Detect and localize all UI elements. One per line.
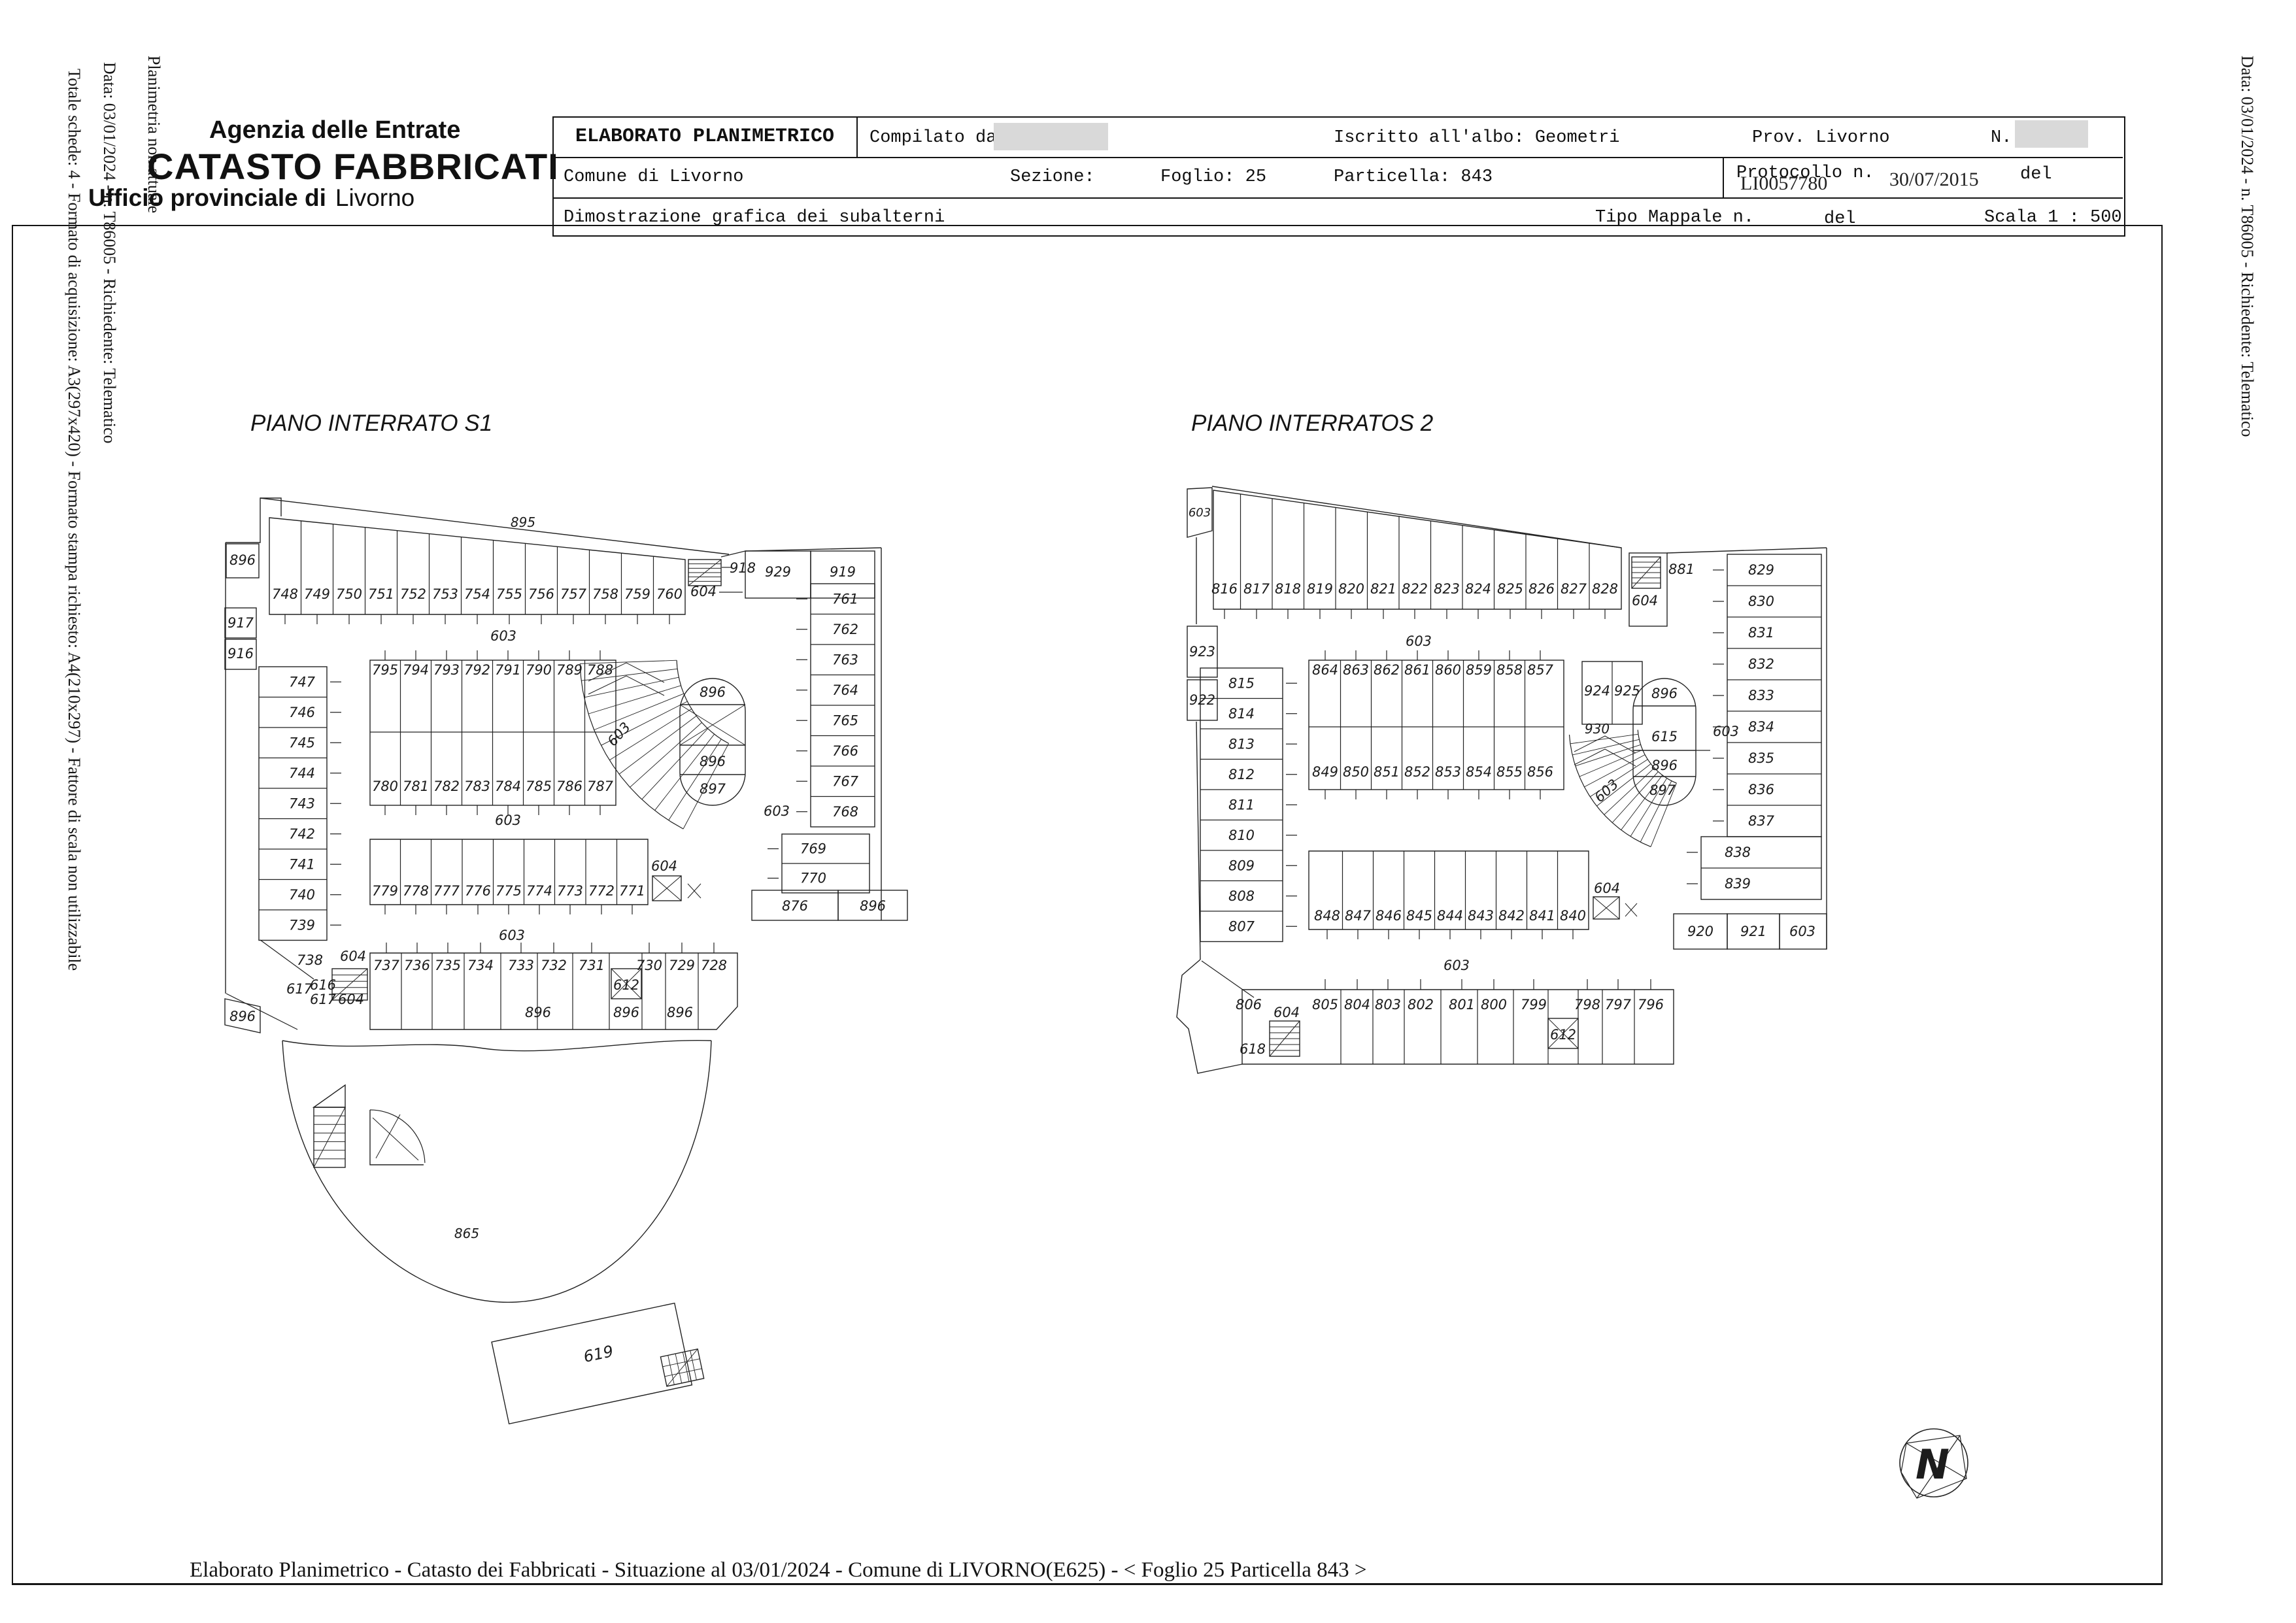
- room-label: 734: [467, 958, 494, 973]
- room-label: 798: [1574, 997, 1600, 1012]
- room-label: 787: [587, 778, 614, 794]
- room-label: 839: [1725, 876, 1751, 892]
- building-619: 619: [492, 1300, 705, 1424]
- room-label: 790: [526, 662, 552, 678]
- room-label: 896: [613, 1005, 639, 1020]
- room-label: 604: [1632, 593, 1658, 609]
- room-label: 612: [613, 977, 639, 993]
- room-label: 817: [1243, 581, 1270, 597]
- room-label: 799: [1521, 997, 1547, 1012]
- room-label: 861: [1404, 662, 1430, 678]
- room-label: 783: [464, 778, 490, 794]
- room-label: 779: [372, 883, 398, 899]
- room-label: 810: [1228, 828, 1255, 843]
- room-label: 741: [289, 856, 315, 872]
- room-label: 858: [1496, 662, 1523, 678]
- room-label: 604: [338, 992, 364, 1007]
- room-label: 784: [495, 778, 521, 794]
- room-label: 863: [1343, 662, 1369, 678]
- room-label: 748: [272, 586, 298, 602]
- room-label: 618: [1240, 1041, 1266, 1057]
- room-label: 781: [403, 778, 429, 794]
- room-label: 865: [454, 1226, 479, 1241]
- room-label: 853: [1435, 764, 1461, 780]
- room-label: 820: [1338, 581, 1364, 597]
- room-label: 828: [1592, 581, 1618, 597]
- room-label: 764: [832, 682, 858, 698]
- room-label: 860: [1435, 662, 1461, 678]
- room-label: 756: [528, 586, 554, 602]
- room-label: 811: [1228, 797, 1255, 812]
- room-label: 929: [765, 564, 791, 580]
- room-label: 603: [1443, 958, 1470, 973]
- room-label: 797: [1605, 997, 1632, 1012]
- room-label: 821: [1370, 581, 1396, 597]
- room-label: 896: [667, 1005, 693, 1020]
- room-label: 916: [228, 646, 254, 661]
- room-label: 917: [228, 615, 254, 631]
- room-label: 759: [624, 586, 650, 602]
- north-compass-icon: N: [1900, 1429, 1968, 1498]
- room-label: 812: [1228, 767, 1255, 782]
- room-label: 730: [636, 958, 662, 973]
- room-label: 728: [701, 958, 727, 973]
- room-label: 603: [490, 628, 516, 644]
- room-label: 746: [289, 705, 315, 720]
- room-label: 930: [1585, 721, 1610, 737]
- room-label: 792: [464, 662, 490, 678]
- room-label: 603: [1789, 924, 1815, 939]
- compass-north-letter: N: [1916, 1441, 1950, 1488]
- room-label: 757: [560, 586, 587, 602]
- room-label: 773: [557, 883, 583, 899]
- room-label: 837: [1748, 813, 1775, 829]
- room-label: 754: [464, 586, 490, 602]
- room-label: 777: [433, 883, 460, 899]
- room-label: 762: [832, 622, 858, 637]
- room-label: 775: [496, 883, 522, 899]
- room-label: 737: [373, 958, 400, 973]
- room-label: 864: [1312, 662, 1338, 678]
- room-label: 603: [1406, 633, 1432, 649]
- room-label: 795: [372, 662, 398, 678]
- room-label: 782: [433, 778, 460, 794]
- room-label: 729: [669, 958, 695, 973]
- room-label: 833: [1748, 688, 1774, 703]
- room-label: 896: [229, 1009, 256, 1024]
- room-label: 738: [297, 952, 323, 968]
- room-label: 619: [582, 1342, 615, 1366]
- room-label: 796: [1638, 997, 1664, 1012]
- room-label: 809: [1228, 858, 1255, 873]
- room-label: 758: [592, 586, 618, 602]
- room-label: 815: [1228, 675, 1255, 691]
- room-label: 813: [1228, 736, 1255, 752]
- room-label: 767: [832, 773, 859, 789]
- room-label: 826: [1528, 581, 1555, 597]
- room-label: 753: [432, 586, 458, 602]
- room-label: 603: [1713, 724, 1739, 739]
- room-label: 769: [800, 841, 826, 857]
- room-label: 772: [588, 883, 615, 899]
- room-label: 804: [1344, 997, 1370, 1012]
- room-label: 822: [1402, 581, 1428, 597]
- plan-s1-drawing: 8957487497507517527537547557567577587597…: [225, 498, 907, 1424]
- room-label: 749: [304, 586, 330, 602]
- room-label: 876: [782, 898, 808, 914]
- room-label: 896: [700, 684, 726, 700]
- room-label: 733: [508, 958, 534, 973]
- room-label: 807: [1228, 918, 1255, 934]
- room-label: 848: [1314, 908, 1340, 924]
- room-label: 740: [289, 887, 315, 903]
- room-label: 616: [310, 977, 336, 993]
- room-label: 736: [404, 958, 430, 973]
- room-label: 744: [289, 765, 315, 781]
- room-label: 818: [1275, 581, 1301, 597]
- room-label: 805: [1312, 997, 1338, 1012]
- room-label: 859: [1466, 662, 1492, 678]
- room-label: 612: [1550, 1027, 1576, 1043]
- room-label: 819: [1307, 581, 1333, 597]
- room-label: 770: [800, 871, 826, 886]
- room-label: 752: [400, 586, 426, 602]
- room-label: 856: [1527, 764, 1553, 780]
- room-label: 751: [368, 586, 394, 602]
- room-label: 750: [336, 586, 362, 602]
- room-label: 881: [1668, 561, 1695, 577]
- floor-plans-drawing: 8957487497507517527537547557567577587597…: [0, 0, 2296, 1623]
- room-label: 755: [496, 586, 522, 602]
- room-label: 920: [1687, 924, 1714, 939]
- room-label: 761: [832, 591, 858, 607]
- room-label: 895: [511, 514, 535, 530]
- room-label: 852: [1404, 764, 1430, 780]
- room-label: 771: [619, 883, 645, 899]
- room-label: 742: [289, 826, 315, 842]
- room-label: 827: [1561, 581, 1587, 597]
- room-label: 831: [1748, 625, 1774, 641]
- room-label: 896: [1651, 686, 1678, 701]
- room-label: 923: [1189, 644, 1215, 660]
- room-label: 850: [1343, 764, 1369, 780]
- room-label: 838: [1725, 845, 1751, 860]
- room-label: 835: [1748, 750, 1774, 766]
- room-label: 604: [651, 858, 677, 874]
- room-label: 918: [730, 560, 756, 576]
- room-label: 793: [433, 662, 460, 678]
- room-label: 840: [1560, 908, 1586, 924]
- room-label: 768: [832, 804, 858, 820]
- room-label: 747: [289, 674, 316, 690]
- room-label: 735: [435, 958, 461, 973]
- room-label: 785: [526, 778, 552, 794]
- room-label: 896: [860, 898, 886, 914]
- room-label: 847: [1345, 908, 1372, 924]
- room-label: 603: [764, 803, 790, 819]
- room-label: 789: [556, 662, 582, 678]
- room-label: 780: [372, 778, 398, 794]
- room-label: 919: [830, 564, 856, 580]
- room-label: 896: [1651, 758, 1678, 773]
- room-label: 731: [579, 958, 605, 973]
- room-label: 794: [403, 662, 429, 678]
- room-label: 617: [310, 992, 337, 1007]
- room-label: 732: [541, 958, 567, 973]
- room-label: 739: [289, 917, 315, 933]
- room-label: 824: [1465, 581, 1491, 597]
- room-label: 808: [1228, 888, 1255, 904]
- room-label: 834: [1748, 719, 1774, 735]
- room-label: 825: [1497, 581, 1523, 597]
- room-label: 897: [700, 781, 726, 797]
- room-label: 604: [340, 948, 366, 964]
- room-label: 763: [832, 652, 858, 667]
- room-label: 896: [229, 552, 256, 568]
- room-label: 922: [1189, 692, 1215, 708]
- room-label: 765: [832, 712, 858, 728]
- room-label: 776: [465, 883, 491, 899]
- plan-s2-drawing: 6038168178188198208218228238248258268278…: [1177, 486, 1827, 1073]
- room-label: 849: [1312, 764, 1338, 780]
- room-label: 843: [1468, 908, 1494, 924]
- room-label: 791: [495, 662, 521, 678]
- room-label: 778: [403, 883, 429, 899]
- room-label: 615: [1651, 729, 1678, 745]
- room-label: 806: [1236, 997, 1262, 1012]
- room-label: 836: [1748, 782, 1774, 797]
- room-label: 803: [1375, 997, 1401, 1012]
- room-label: 896: [525, 1005, 551, 1020]
- room-label: 854: [1466, 764, 1492, 780]
- room-label: 823: [1434, 581, 1460, 597]
- footer-caption: Elaborato Planimetrico - Catasto dei Fab…: [190, 1558, 1367, 1582]
- room-label: 844: [1437, 908, 1463, 924]
- room-label: 774: [526, 883, 552, 899]
- room-label: 857: [1527, 662, 1554, 678]
- room-label: 845: [1406, 908, 1432, 924]
- room-label: 800: [1481, 997, 1507, 1012]
- room-label: 855: [1496, 764, 1523, 780]
- room-label: 841: [1529, 908, 1555, 924]
- room-label: 760: [656, 586, 683, 602]
- room-label: 846: [1376, 908, 1402, 924]
- room-label: 766: [832, 743, 858, 759]
- room-label: 862: [1374, 662, 1400, 678]
- room-label: 830: [1748, 594, 1774, 609]
- scanned-cadastral-document: { "header": { "agency": "Agenzia delle E…: [0, 0, 2296, 1623]
- room-label: 842: [1498, 908, 1525, 924]
- room-label: 617: [286, 981, 313, 997]
- room-label: 786: [556, 778, 582, 794]
- room-label: 924: [1584, 683, 1610, 699]
- room-label: 801: [1449, 997, 1475, 1012]
- room-label: 851: [1374, 764, 1400, 780]
- room-label: 604: [690, 584, 717, 599]
- room-label: 743: [289, 795, 315, 811]
- room-label: 829: [1748, 562, 1774, 578]
- room-label: 745: [289, 735, 315, 750]
- room-label: 604: [1274, 1005, 1300, 1020]
- room-label: 603: [499, 928, 525, 943]
- room-label: 604: [1594, 880, 1620, 896]
- room-label: 921: [1740, 924, 1766, 939]
- room-label: 816: [1211, 581, 1238, 597]
- room-label: 603: [1189, 506, 1211, 520]
- room-label: 814: [1228, 706, 1255, 722]
- room-label: 832: [1748, 656, 1774, 672]
- room-label: 802: [1408, 997, 1434, 1012]
